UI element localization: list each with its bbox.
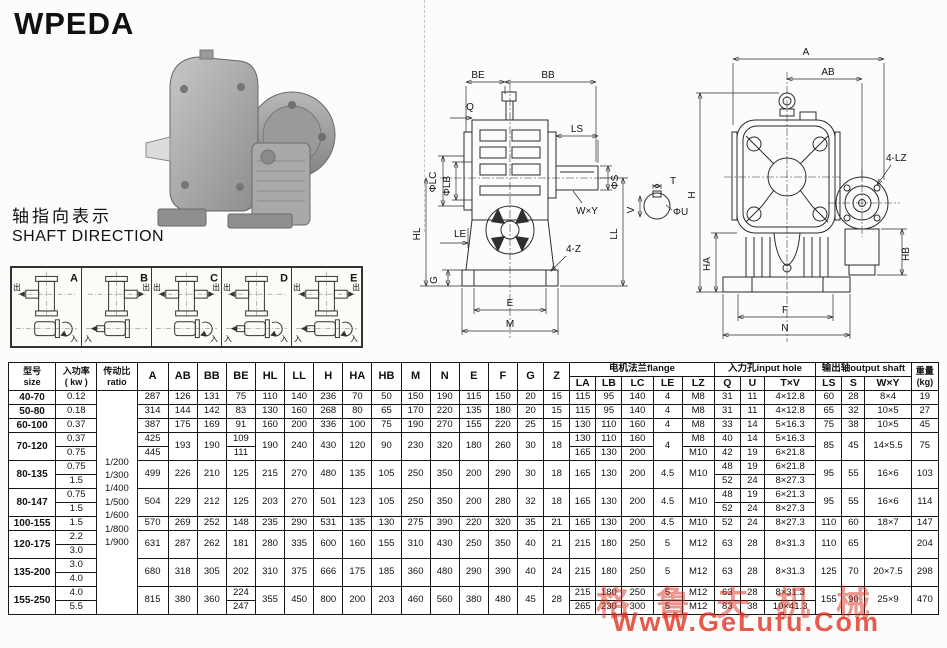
table-row: 60-1000.37387175169911602003361007519027… [9, 419, 939, 433]
dim-label-ha: HA [702, 257, 713, 271]
column-header-lb: LB [596, 377, 622, 391]
shaft-diagram-cell: B出入 [82, 268, 152, 346]
table-cell: 165 [570, 447, 596, 461]
shaft-direction-heading: 轴指向表示 SHAFT DIRECTION [12, 206, 164, 247]
shaft-diagram: C出出入 [152, 268, 221, 346]
table-cell: 390 [488, 559, 517, 587]
dim-label-wxy: W×Y [576, 206, 598, 217]
table-cell: 2.2 [56, 531, 97, 545]
table-cell: 262 [197, 531, 226, 559]
table-cell: 95 [596, 405, 622, 419]
table-cell: 229 [168, 489, 197, 517]
table-cell: 480 [430, 559, 459, 587]
shaft-diagram-cell: C出出入 [152, 268, 222, 346]
table-cell: 310 [401, 531, 430, 559]
table-cell: 180 [596, 531, 622, 559]
table-cell: 125 [226, 489, 255, 517]
table-cell: 310 [255, 559, 284, 587]
table-cell: 1.5 [56, 475, 97, 489]
table-cell: 160 [622, 433, 653, 447]
table-cell: 40 [714, 433, 740, 447]
table-cell: M12 [682, 531, 714, 559]
table-cell: 25 [517, 419, 543, 433]
table-row: 50-800.183141441428313016026880651702201… [9, 405, 939, 419]
table-cell: 200 [622, 489, 653, 517]
table-cell: 800 [314, 587, 343, 615]
table-cell: 200 [622, 447, 653, 461]
table-cell: 110 [596, 419, 622, 433]
table-cell: 19 [740, 489, 764, 503]
table-cell: 65 [372, 405, 401, 419]
table-cell: 135-200 [9, 559, 56, 587]
table-cell: 4 [653, 419, 682, 433]
out-label: 出 [223, 282, 231, 292]
table-cell: 90 [372, 433, 401, 461]
dim-label-ll: LL [609, 228, 620, 240]
table-cell: 0.75 [56, 489, 97, 503]
table-cell: 8×27.3 [764, 517, 815, 531]
in-label: 入 [280, 335, 288, 344]
in-label: 入 [294, 335, 302, 344]
front-view-drawing: A AB 4-LZ H [688, 30, 947, 360]
dim-label-bb: BB [541, 70, 555, 81]
column-header-dim: BE [226, 363, 255, 391]
table-cell: 815 [137, 587, 168, 615]
table-cell: 24 [740, 503, 764, 517]
table-cell: M10 [682, 461, 714, 489]
in-label: 入 [70, 335, 78, 344]
table-cell: 250 [622, 531, 653, 559]
column-header-dim: Z [544, 363, 570, 391]
table-cell: 4.0 [56, 587, 97, 601]
column-header-u: U [740, 377, 764, 391]
table-cell: 0.75 [56, 447, 97, 461]
table-cell: 16×6 [865, 489, 911, 517]
table-cell: 10×5 [865, 419, 911, 433]
table-cell: 298 [911, 559, 938, 587]
gearbox-photo-shapes [146, 50, 335, 228]
shaft-diagram-cell: E出出入入 [292, 268, 361, 346]
table-cell: 390 [430, 517, 459, 531]
table-cell: 125 [226, 461, 255, 489]
table-cell: 8×27.3 [764, 503, 815, 517]
shaft-direction-label-en: SHAFT DIRECTION [12, 227, 164, 247]
table-cell: 105 [372, 461, 401, 489]
table-cell: 130 [596, 461, 622, 489]
table-cell: 28 [544, 587, 570, 615]
table-cell: 8×4 [865, 391, 911, 405]
table-cell: 4.5 [653, 461, 682, 489]
column-header-dim: H [314, 363, 343, 391]
table-cell: 280 [488, 489, 517, 517]
table-cell: 226 [168, 461, 197, 489]
table-cell: M10 [682, 489, 714, 517]
table-cell: 131 [197, 391, 226, 405]
table-cell: 140 [622, 405, 653, 419]
table-cell: 40 [517, 559, 543, 587]
column-header-weight: 重量(kg) [911, 363, 938, 391]
table-cell: 18×7 [865, 517, 911, 531]
column-header-dim: F [488, 363, 517, 391]
table-cell: 24 [544, 559, 570, 587]
table-cell: 270 [285, 461, 314, 489]
table-cell: 75 [816, 419, 842, 433]
table-cell: 5.5 [56, 601, 97, 615]
table-cell: 4 [653, 391, 682, 405]
table-cell: 175 [343, 559, 372, 587]
table-cell: 350 [430, 489, 459, 517]
table-cell: 387 [137, 419, 168, 433]
table-cell: 150 [401, 391, 430, 405]
table-cell: 65 [816, 405, 842, 419]
table-cell: 290 [459, 559, 488, 587]
table-cell: 8×27.3 [764, 475, 815, 489]
table-cell: 24 [740, 475, 764, 489]
table-row: 40-700.121/2001/3001/4001/5001/6001/8001… [9, 391, 939, 405]
table-cell: 600 [314, 531, 343, 559]
table-cell: 14 [740, 433, 764, 447]
dim-label-v: V [626, 206, 637, 213]
table-cell: 8×31.3 [764, 531, 815, 559]
table-cell: 5×16.3 [764, 419, 815, 433]
product-photo [140, 45, 340, 240]
table-cell: 150 [488, 391, 517, 405]
column-group-input-hole: 入力孔input hole [714, 363, 815, 377]
table-cell: 110 [816, 517, 842, 531]
table-cell: 4 [653, 433, 682, 461]
table-cell: 20 [517, 391, 543, 405]
table-cell: 50-80 [9, 405, 56, 419]
column-header-dim: E [459, 363, 488, 391]
table-cell: 165 [570, 461, 596, 489]
column-header-dim: AB [168, 363, 197, 391]
table-cell [865, 531, 911, 559]
table-cell: 80-135 [9, 461, 56, 489]
table-cell: 21 [544, 517, 570, 531]
shaft-diagram: A出入 [12, 268, 81, 346]
dim-label-phi-lc: ΦLC [428, 172, 439, 193]
ratio-cell: 1/2001/3001/4001/5001/6001/8001/900 [97, 391, 137, 615]
out-label: 出 [153, 282, 161, 292]
table-cell: 100 [343, 419, 372, 433]
table-cell: 200 [343, 587, 372, 615]
out-label: 出 [212, 282, 220, 292]
out-label: 出 [13, 282, 21, 292]
table-cell: 130 [570, 433, 596, 447]
table-cell: 52 [714, 517, 740, 531]
table-cell: 430 [430, 531, 459, 559]
table-cell: 4.5 [653, 517, 682, 531]
table-cell: 265 [570, 601, 596, 615]
table-cell: 0.75 [56, 461, 97, 475]
column-header-la: LA [570, 377, 596, 391]
table-cell: 270 [430, 419, 459, 433]
table-cell: 4×12.8 [764, 405, 815, 419]
table-cell: 190 [401, 419, 430, 433]
table-cell: M10 [682, 447, 714, 461]
dim-label-phi-lb: ΦLB [442, 176, 453, 197]
table-cell: 4.5 [653, 489, 682, 517]
table-cell: 200 [459, 489, 488, 517]
dim-label-a: A [803, 47, 810, 58]
table-cell: 480 [314, 461, 343, 489]
table-cell: 450 [285, 587, 314, 615]
column-header-ratio: 传动比ratio [97, 363, 137, 391]
table-cell: 180 [488, 405, 517, 419]
table-cell: 142 [197, 405, 226, 419]
table-cell: 200 [459, 461, 488, 489]
table-cell: 320 [430, 433, 459, 461]
table-cell: 3.0 [56, 545, 97, 559]
table-cell: 140 [622, 391, 653, 405]
table-cell: 5 [653, 531, 682, 559]
column-group-output-shaft: 输出轴output shaft [816, 363, 911, 377]
table-cell: 4 [653, 405, 682, 419]
out-label: 出 [352, 282, 360, 292]
table-cell: 220 [459, 517, 488, 531]
in-label: 入 [350, 335, 358, 344]
table-cell: 666 [314, 559, 343, 587]
table-cell: 50 [372, 391, 401, 405]
table-cell: 200 [622, 517, 653, 531]
table-cell: 269 [168, 517, 197, 531]
table-cell: 60-100 [9, 419, 56, 433]
table-cell: 15 [544, 391, 570, 405]
dim-label-ab: AB [821, 67, 835, 78]
column-header-dim: HB [372, 363, 401, 391]
table-cell: 160 [622, 419, 653, 433]
table-cell: 30 [517, 461, 543, 489]
shaft-diagram-strip: A出入B出入C出出入D出入入E出出入入 [10, 266, 363, 348]
table-cell: 169 [197, 419, 226, 433]
table-cell: 6×21.3 [764, 489, 815, 503]
table-cell: 45 [517, 587, 543, 615]
table-cell: M10 [682, 517, 714, 531]
table-row: 80-1470.75504229212125203270501123105250… [9, 489, 939, 503]
table-cell: 110 [596, 433, 622, 447]
table-cell: 148 [226, 517, 255, 531]
table-cell: 204 [911, 531, 938, 559]
table-cell: 335 [285, 531, 314, 559]
table-cell: 287 [168, 531, 197, 559]
table-cell: 18 [544, 433, 570, 461]
table-cell: 180 [459, 433, 488, 461]
column-header-size: 型号size [9, 363, 56, 391]
table-cell: 120-175 [9, 531, 56, 559]
out-label: 出 [293, 282, 301, 292]
table-cell: 193 [168, 433, 197, 461]
table-cell: 215 [570, 559, 596, 587]
table-cell: 200 [285, 419, 314, 433]
column-header-dim: A [137, 363, 168, 391]
table-cell: 111 [226, 447, 255, 461]
table-cell: 16×6 [865, 461, 911, 489]
table-cell: 19 [740, 447, 764, 461]
table-cell: 95 [816, 489, 842, 517]
table-cell: 215 [570, 587, 596, 601]
table-cell: 85 [816, 433, 842, 461]
table-cell: 336 [314, 419, 343, 433]
table-cell: 470 [911, 587, 938, 615]
table-cell: M8 [682, 433, 714, 447]
table-cell: 170 [401, 405, 430, 419]
table-cell: 55 [842, 461, 865, 489]
header-row-1: 型号size 入功率( kw ) 传动比ratio A AB BB BE HL … [9, 363, 939, 377]
column-header-le: LE [653, 377, 682, 391]
table-cell: 114 [911, 489, 938, 517]
table-cell: 247 [226, 601, 255, 615]
table-cell: 3.0 [56, 559, 97, 573]
table-cell: 160 [255, 419, 284, 433]
table-cell: 200 [622, 461, 653, 489]
table-cell: 680 [137, 559, 168, 587]
table-cell: 220 [488, 419, 517, 433]
table-cell: 320 [488, 517, 517, 531]
page-title: WPEDA [14, 6, 134, 42]
table-cell: 80 [343, 405, 372, 419]
column-header-dim: HA [343, 363, 372, 391]
table-cell: 425 [137, 433, 168, 447]
table-row: 70-1200.37425193190109190240430120902303… [9, 433, 939, 447]
table-cell: 203 [372, 587, 401, 615]
table-row: 120-1752.2631287262181280335600160155310… [9, 531, 939, 545]
table-cell: 75 [372, 419, 401, 433]
shaft-diagram: E出出入入 [292, 268, 361, 346]
table-cell: 165 [570, 517, 596, 531]
dim-label-4z: 4-Z [566, 244, 581, 255]
table-cell: 38 [842, 419, 865, 433]
watermark-url: WwW.GeLufu.Com [612, 607, 880, 638]
table-cell: 65 [842, 531, 865, 559]
table-cell: 19 [740, 461, 764, 475]
table-cell: 147 [911, 517, 938, 531]
table-cell: 212 [197, 489, 226, 517]
table-cell: 70 [343, 391, 372, 405]
shaft-diagram: B出入 [82, 268, 151, 346]
table-cell: 130 [570, 419, 596, 433]
diagram-letter: A [70, 272, 78, 284]
table-cell: 10×5 [865, 405, 911, 419]
table-cell: 115 [459, 391, 488, 405]
table-cell: 130 [255, 405, 284, 419]
diagram-letter: D [280, 272, 288, 284]
table-cell: 499 [137, 461, 168, 489]
table-cell: 70-120 [9, 433, 56, 461]
table-cell: 110 [255, 391, 284, 405]
table-cell: 144 [168, 405, 197, 419]
table-cell: 215 [570, 531, 596, 559]
table-cell: M8 [682, 419, 714, 433]
table-cell: 250 [401, 461, 430, 489]
table-row: 80-1350.75499226210125215270480135105250… [9, 461, 939, 475]
table-cell: 115 [570, 391, 596, 405]
table-cell: 560 [430, 587, 459, 615]
table-cell: 230 [401, 433, 430, 461]
table-cell: 160 [285, 405, 314, 419]
column-header-dim: M [401, 363, 430, 391]
table-cell: M8 [682, 405, 714, 419]
table-cell: 0.37 [56, 419, 97, 433]
column-header-dim: BB [197, 363, 226, 391]
table-cell: 501 [314, 489, 343, 517]
table-cell: 130 [596, 517, 622, 531]
table-cell: 155 [372, 531, 401, 559]
table-cell: 4.0 [56, 573, 97, 587]
table-cell: 126 [168, 391, 197, 405]
table-cell: 240 [285, 433, 314, 461]
table-cell: 103 [911, 461, 938, 489]
table-cell: 531 [314, 517, 343, 531]
dim-label-g: G [429, 276, 440, 284]
table-cell: 480 [488, 587, 517, 615]
table-cell: 290 [488, 461, 517, 489]
column-header-lz: LZ [682, 377, 714, 391]
dim-label-le: LE [454, 229, 467, 240]
table-cell: 5×16.3 [764, 433, 815, 447]
page: WPEDA [0, 0, 947, 648]
table-cell: 270 [285, 489, 314, 517]
table-cell: 91 [226, 419, 255, 433]
table-cell: 110 [816, 531, 842, 559]
table-cell: 190 [430, 391, 459, 405]
table-cell: 95 [816, 461, 842, 489]
column-header-s: S [842, 377, 865, 391]
table-cell: 28 [740, 531, 764, 559]
table-cell: 32 [517, 489, 543, 517]
table-cell: 224 [226, 587, 255, 601]
table-cell: 130 [596, 489, 622, 517]
table-cell: 155 [459, 419, 488, 433]
side-view-drawing: BE BB Q LS ΦS W×Y ΦLC [410, 36, 700, 361]
column-header-dim: N [430, 363, 459, 391]
table-cell: 360 [197, 587, 226, 615]
table-cell: 15 [544, 419, 570, 433]
table-cell: 105 [372, 489, 401, 517]
table-cell: 236 [314, 391, 343, 405]
table-cell: 215 [255, 461, 284, 489]
table-cell: 75 [226, 391, 255, 405]
dim-label-ls: LS [571, 124, 584, 135]
table-cell: 45 [842, 433, 865, 461]
column-header-ls: LS [816, 377, 842, 391]
table-cell: 1.5 [56, 517, 97, 531]
dim-label-4lz: 4-LZ [886, 153, 907, 164]
table-cell: 60 [816, 391, 842, 405]
table-cell: 11 [740, 405, 764, 419]
table-cell: 305 [197, 559, 226, 587]
table-cell: 445 [137, 447, 168, 461]
table-cell: 235 [255, 517, 284, 531]
dim-label-hb: HB [901, 247, 912, 261]
table-cell: 109 [226, 433, 255, 447]
column-header-dim: HL [255, 363, 284, 391]
table-cell: 220 [430, 405, 459, 419]
table-cell: 0.12 [56, 391, 97, 405]
table-cell: 1.5 [56, 503, 97, 517]
table-cell: 360 [401, 559, 430, 587]
table-cell: 380 [168, 587, 197, 615]
table-cell: 28 [842, 391, 865, 405]
in-label: 入 [84, 335, 92, 344]
in-label: 入 [224, 335, 232, 344]
dim-label-q: Q [466, 102, 474, 113]
table-cell: 430 [314, 433, 343, 461]
table-cell: 175 [168, 419, 197, 433]
dim-label-m: M [506, 319, 514, 330]
table-cell: 0.37 [56, 433, 97, 447]
table-row: 100-1551.5570269252148235290531135130275… [9, 517, 939, 531]
dim-label-n: N [781, 323, 788, 334]
